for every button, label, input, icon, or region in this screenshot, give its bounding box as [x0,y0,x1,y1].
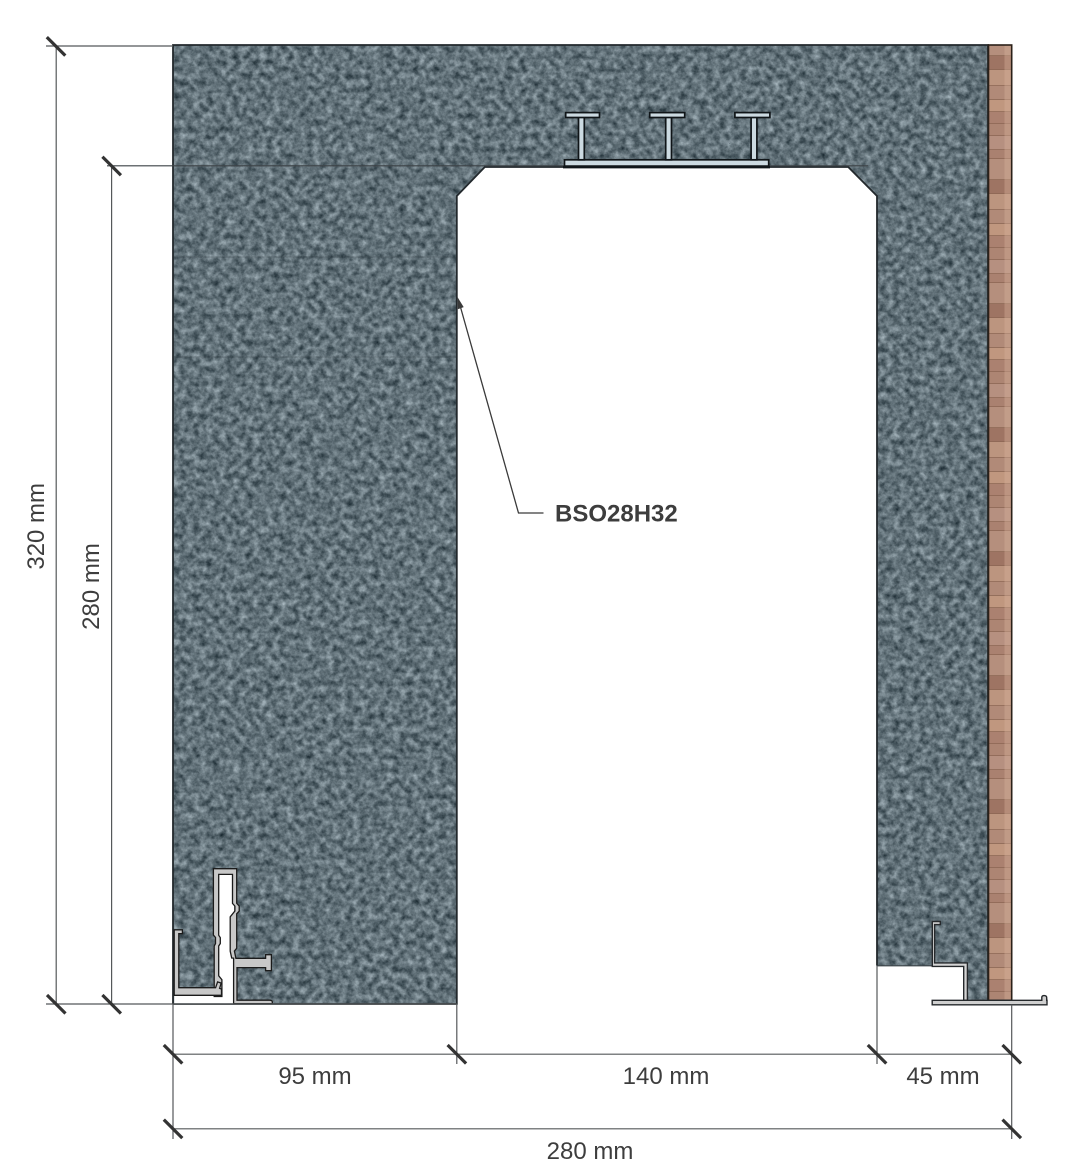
svg-text:95 mm: 95 mm [278,1063,351,1090]
svg-text:140 mm: 140 mm [623,1063,710,1090]
svg-text:280 mm: 280 mm [547,1138,634,1165]
svg-text:BSO28H32: BSO28H32 [555,501,678,528]
svg-text:280 mm: 280 mm [78,543,105,630]
svg-text:45 mm: 45 mm [906,1063,979,1090]
svg-text:320 mm: 320 mm [23,483,50,570]
